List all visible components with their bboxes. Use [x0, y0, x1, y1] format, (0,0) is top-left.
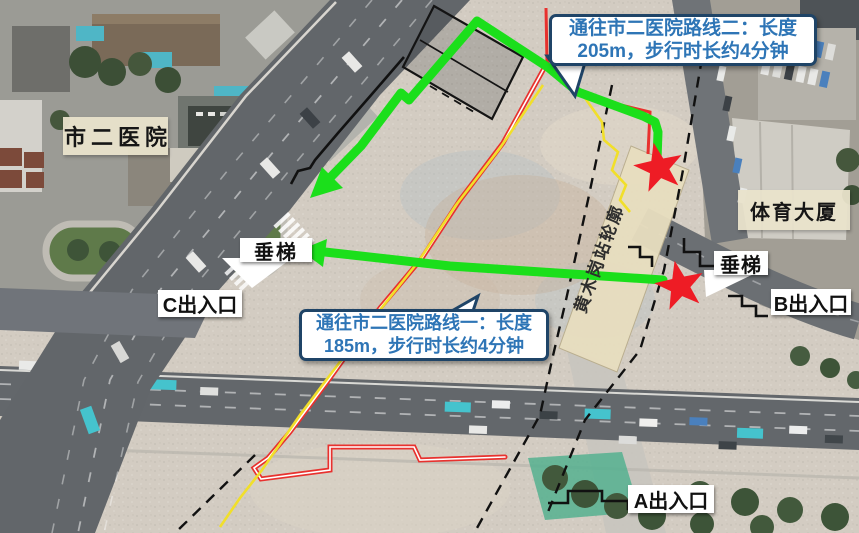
elevator-left-label: 垂梯: [240, 238, 312, 262]
route-2-callout-line1: 通往市二医院路线二：长度: [569, 17, 797, 40]
route-1-callout-line2: 185m，步行时长约4分钟: [324, 335, 524, 358]
hospital-label: 市二医院: [63, 117, 168, 155]
elevator-right-label: 垂梯: [714, 251, 768, 275]
exit-b-label: B出入口: [771, 289, 851, 315]
exit-c-label: C出入口: [158, 290, 242, 317]
sports-building-label: 体育大厦: [738, 190, 850, 230]
route-2-callout-line2: 205m，步行时长约4分钟: [577, 40, 788, 63]
exit-a-label: A出入口: [628, 485, 714, 513]
aerial-map-screenshot: 通往市二医院路线二：长度 205m，步行时长约4分钟 通往市二医院路线一：长度 …: [0, 0, 859, 533]
route-2-callout: 通往市二医院路线二：长度 205m，步行时长约4分钟: [549, 14, 817, 66]
route-1-callout-line1: 通往市二医院路线一：长度: [316, 312, 532, 335]
route-1-callout: 通往市二医院路线一：长度 185m，步行时长约4分钟: [299, 309, 549, 361]
